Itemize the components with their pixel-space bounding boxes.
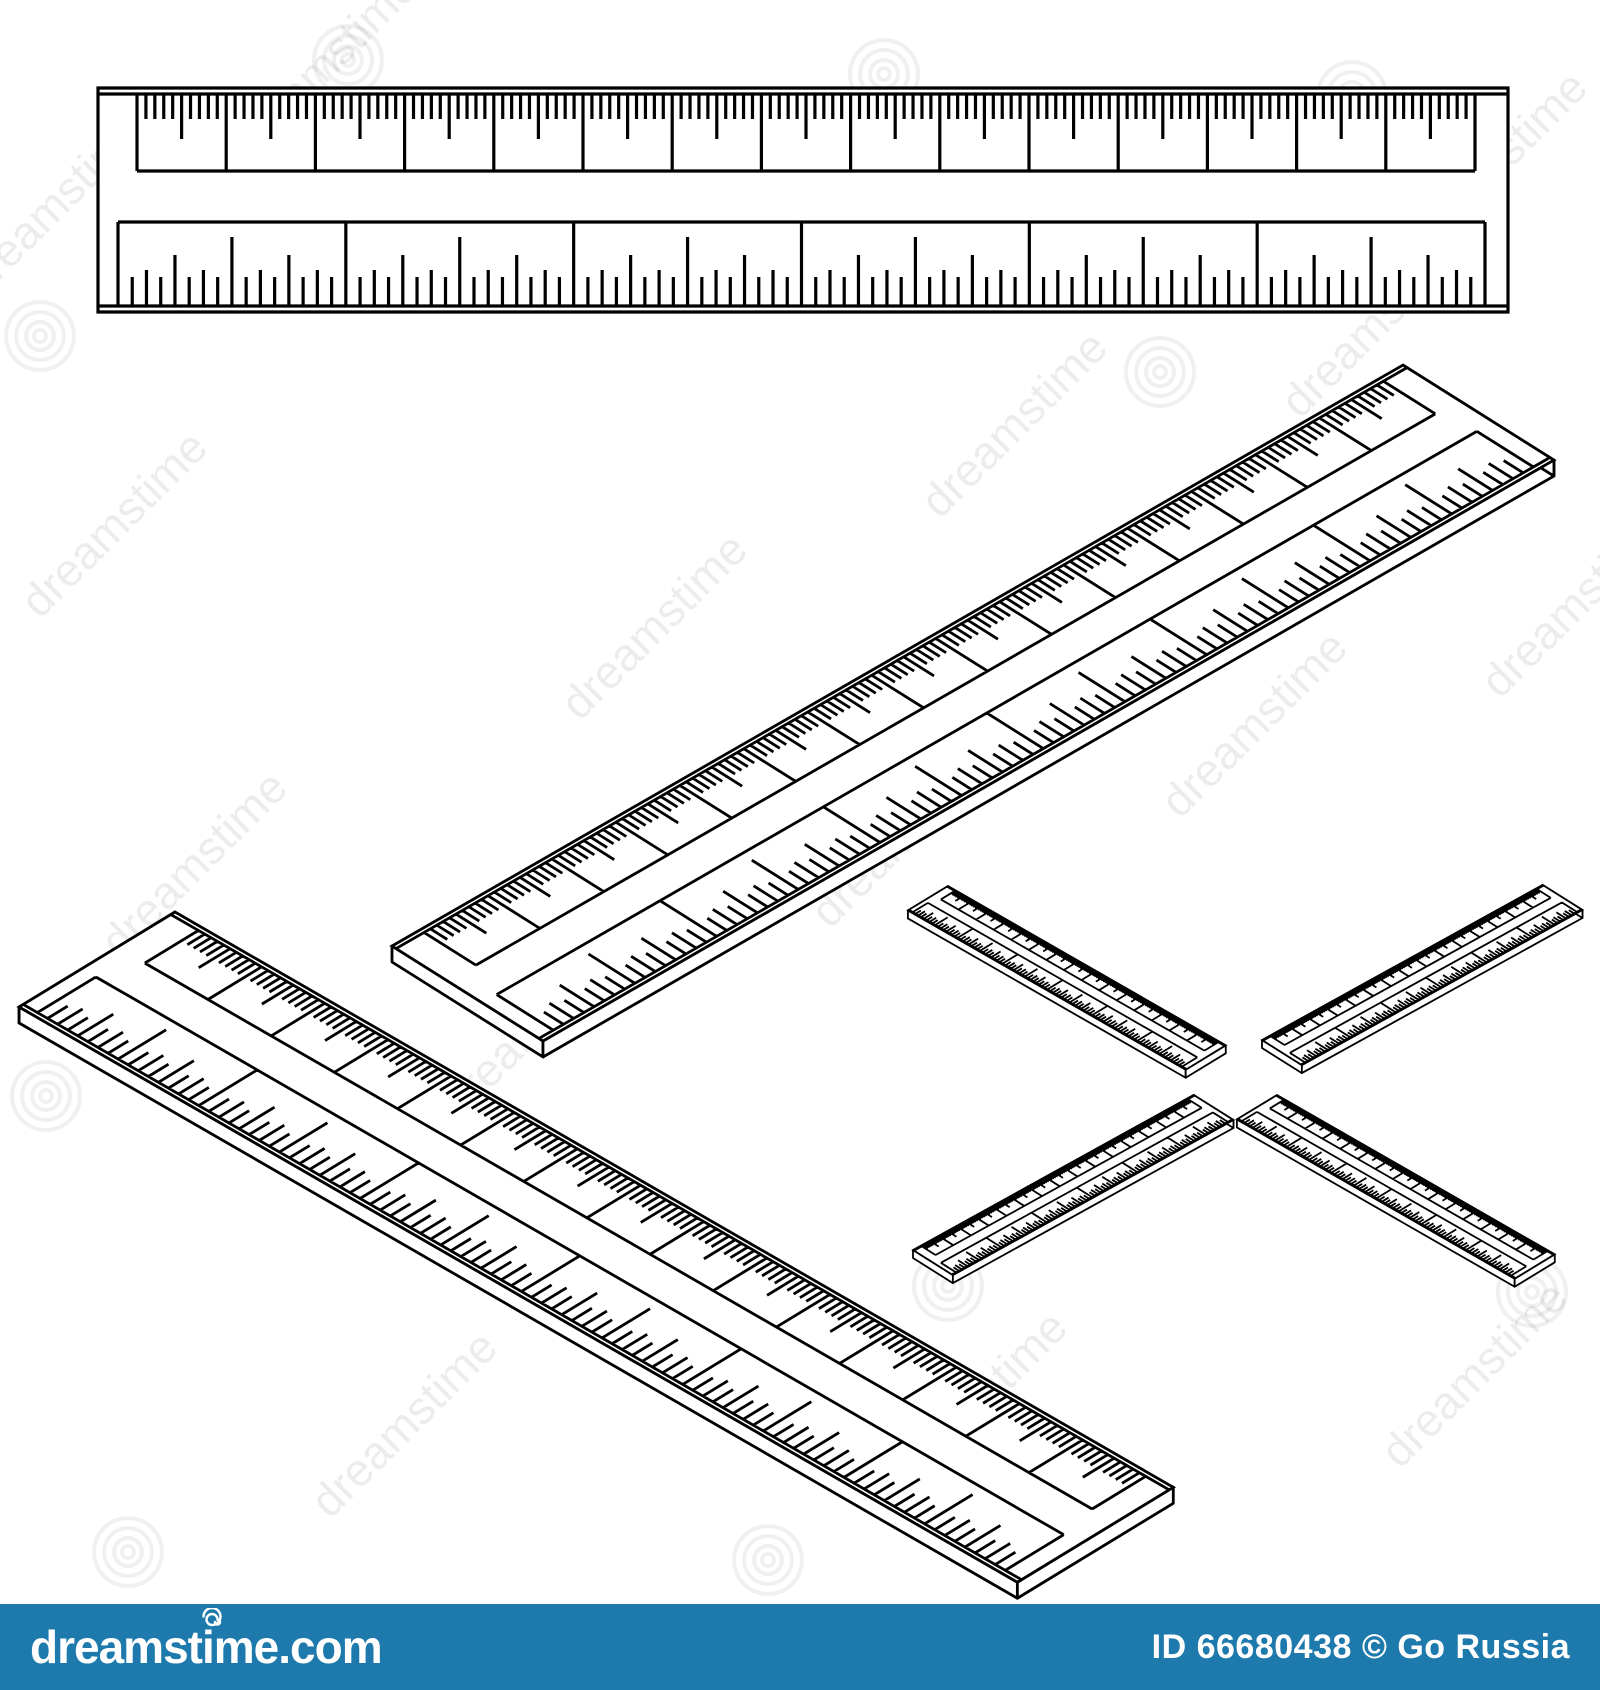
- small-ruler-sw: [913, 1095, 1233, 1283]
- ghost-watermark-spiral: [1126, 338, 1194, 406]
- ruler-side-face: [19, 1007, 1017, 1598]
- small-ruler-ne: [1262, 885, 1582, 1073]
- dreamstime-logo: dreamstime.com: [30, 1624, 382, 1670]
- flat-ruler: [98, 88, 1508, 312]
- small-ruler-nw: [908, 886, 1226, 1078]
- ruler-illustration: dreamstimedreamstimedreamstimedreamstime…: [0, 0, 1600, 1690]
- ghost-watermark-spiral: [12, 1062, 80, 1130]
- ruler-face: [908, 886, 1226, 1070]
- ghost-watermark-spiral: [94, 1518, 162, 1586]
- ghost-watermark-text: dreamstime: [1470, 500, 1600, 707]
- ruler-side-face: [1237, 1119, 1515, 1286]
- small-ruler-se: [1237, 1095, 1555, 1287]
- ghost-watermark-spiral: [6, 302, 74, 370]
- stock-illustration-page: dreamstimedreamstimedreamstimedreamstime…: [0, 0, 1600, 1690]
- image-credit: ID 66680438 © Go Russia: [1152, 1628, 1570, 1667]
- ruler-face: [1237, 1095, 1555, 1279]
- ghost-watermark-text: dreamstime: [1370, 1270, 1577, 1477]
- ruler-side-face: [1302, 910, 1583, 1073]
- ghost-watermark-text: dreamstime: [910, 320, 1117, 527]
- ruler-face: [913, 1095, 1233, 1275]
- ruler-side-face: [953, 1120, 1234, 1283]
- ghost-watermark-text: dreamstime: [550, 522, 757, 729]
- ruler-face: [1262, 885, 1582, 1065]
- ghost-watermark-text: dreamstime: [10, 420, 217, 627]
- dreamstime-spiral-icon: [202, 1608, 228, 1634]
- ruler-side-face: [908, 910, 1186, 1077]
- ghost-watermark-spiral: [734, 1526, 802, 1594]
- ghost-watermark-text: dreamstime: [300, 1320, 507, 1527]
- watermark-bar: dreamstime.com ID 66680438 © Go Russia: [0, 1604, 1600, 1690]
